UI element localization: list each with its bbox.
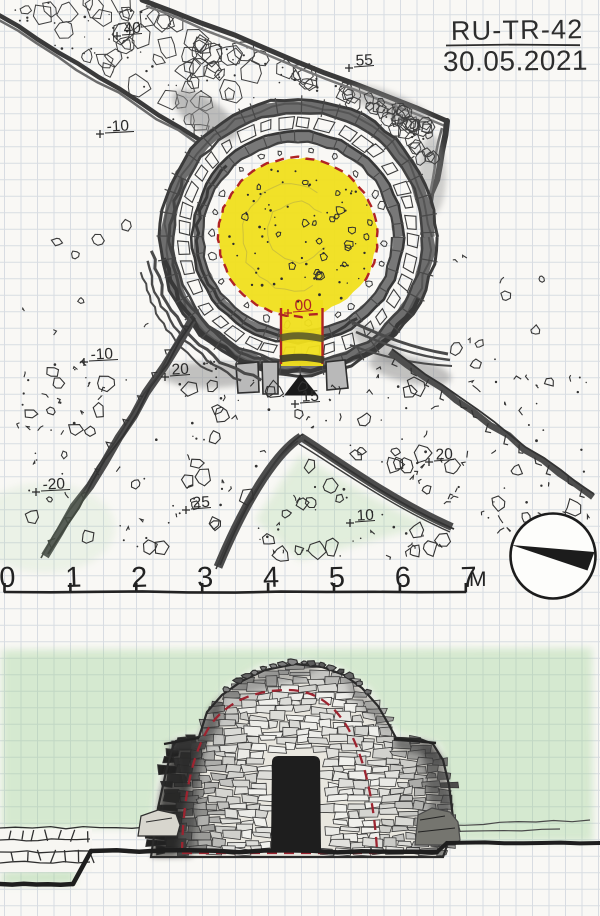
svg-text:5: 5: [328, 562, 345, 595]
svg-text:0: 0: [0, 562, 16, 595]
svg-text:RU-TR-42: RU-TR-42: [451, 14, 584, 46]
svg-text:1: 1: [65, 562, 82, 595]
svg-text:2: 2: [131, 562, 148, 595]
svg-text:3: 3: [197, 562, 214, 595]
svg-text:30.05.2021: 30.05.2021: [443, 45, 588, 77]
svg-text:6: 6: [394, 562, 411, 595]
svg-text:M: M: [469, 568, 487, 591]
svg-text:4: 4: [262, 562, 279, 595]
